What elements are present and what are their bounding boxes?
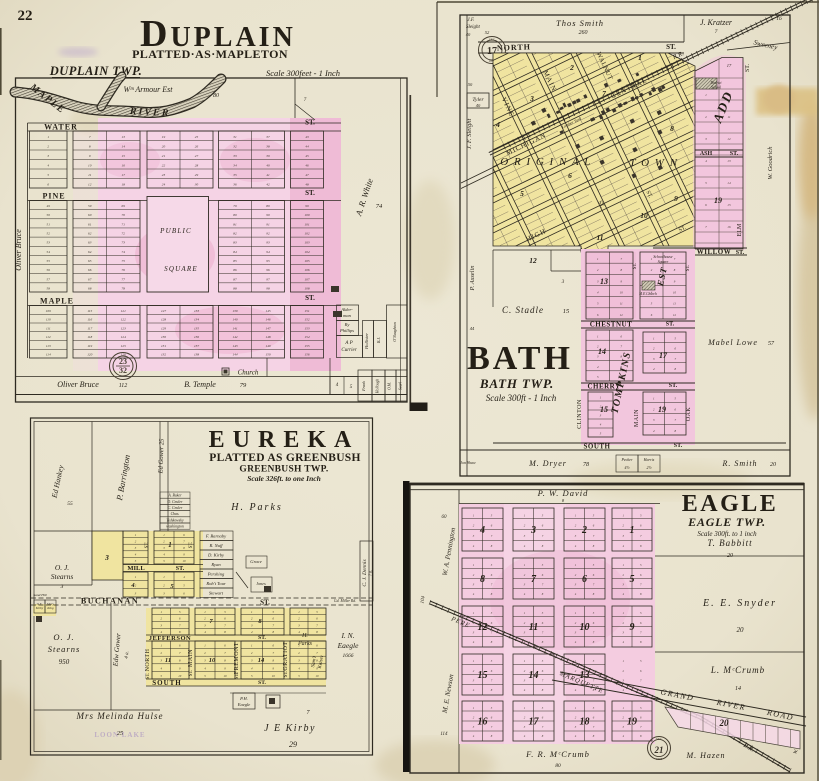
- svg-text:75: 75: [122, 259, 126, 263]
- svg-text:1898: 1898: [656, 757, 663, 761]
- svg-text:15: 15: [727, 203, 731, 207]
- svg-text:20: 20: [162, 144, 166, 148]
- svg-text:142: 142: [232, 335, 237, 339]
- svg-text:C. Gruler: C. Gruler: [168, 506, 183, 510]
- svg-text:21: 21: [654, 745, 664, 755]
- svg-text:10: 10: [272, 674, 276, 678]
- svg-text:ST.: ST.: [235, 673, 240, 680]
- svg-text:74: 74: [376, 203, 383, 210]
- svg-text:Jones: Jones: [256, 581, 266, 586]
- svg-text:A P: A P: [344, 341, 352, 346]
- svg-text:C. Stadle: C. Stadle: [502, 305, 544, 315]
- svg-text:141: 141: [232, 326, 237, 330]
- svg-text:17: 17: [659, 351, 668, 360]
- svg-text:D. Kirby: D. Kirby: [207, 553, 225, 558]
- svg-text:136: 136: [194, 335, 199, 339]
- svg-text:150: 150: [265, 353, 270, 357]
- svg-text:92: 92: [266, 232, 270, 236]
- svg-text:W. Goodrich: W. Goodrich: [767, 147, 774, 180]
- svg-text:154: 154: [304, 335, 309, 339]
- svg-text:112: 112: [119, 383, 128, 389]
- svg-text:ST.: ST.: [284, 671, 289, 678]
- svg-text:Scale 300ft - 1 Inch: Scale 300ft - 1 Inch: [486, 393, 557, 403]
- svg-text:PLATTED·AS·MAPLETON: PLATTED·AS·MAPLETON: [132, 47, 288, 61]
- svg-text:8: 8: [480, 574, 485, 585]
- svg-text:Parks: Parks: [297, 641, 313, 647]
- svg-text:93: 93: [266, 241, 270, 245]
- svg-text:139: 139: [232, 309, 237, 313]
- svg-text:88: 88: [233, 286, 237, 290]
- svg-text:MAPLE: MAPLE: [40, 297, 74, 306]
- svg-text:Mabel Lowe: Mabel Lowe: [707, 338, 758, 347]
- svg-text:114: 114: [46, 353, 51, 357]
- svg-text:21: 21: [162, 154, 166, 158]
- svg-text:6: 6: [582, 574, 587, 585]
- svg-text:53: 53: [47, 241, 51, 245]
- svg-text:130: 130: [161, 335, 166, 339]
- svg-text:124: 124: [121, 335, 126, 339]
- svg-text:86: 86: [233, 268, 237, 272]
- svg-text:14: 14: [258, 657, 265, 664]
- svg-text:10: 10: [183, 559, 187, 563]
- svg-text:Eaegle: Eaegle: [337, 641, 359, 650]
- svg-text:38: 38: [266, 144, 270, 148]
- svg-text:L. MᶜCrumb: L. MᶜCrumb: [710, 665, 765, 675]
- svg-text:15: 15: [600, 405, 608, 414]
- svg-text:3: 3: [705, 137, 707, 141]
- svg-text:CHESTNUT: CHESTNUT: [590, 321, 633, 329]
- svg-text:117: 117: [87, 326, 92, 330]
- svg-text:114: 114: [440, 732, 448, 737]
- svg-text:ST.: ST.: [176, 566, 185, 572]
- svg-text:16: 16: [122, 163, 126, 167]
- svg-text:22: 22: [18, 8, 33, 24]
- svg-text:66: 66: [88, 268, 92, 272]
- svg-text:11: 11: [88, 173, 91, 177]
- svg-text:Alder-: Alder-: [340, 307, 353, 312]
- svg-text:ST.: ST.: [305, 119, 315, 127]
- svg-text:O. Gruler: O. Gruler: [168, 500, 183, 504]
- svg-text:72: 72: [122, 232, 126, 236]
- svg-text:Jon Shaw: Jon Shaw: [460, 460, 476, 465]
- svg-text:17: 17: [122, 173, 126, 177]
- svg-text:10: 10: [88, 163, 92, 167]
- svg-text:Chas.: Chas.: [171, 512, 180, 516]
- svg-text:ST.: ST.: [633, 263, 638, 270]
- svg-text:107: 107: [304, 277, 309, 281]
- svg-text:RIVER: RIVER: [129, 106, 171, 119]
- svg-text:23: 23: [119, 357, 127, 366]
- svg-text:20: 20: [770, 462, 776, 468]
- svg-text:138: 138: [194, 353, 199, 357]
- svg-text:Wᵐ Armour Est: Wᵐ Armour Est: [124, 85, 174, 94]
- svg-text:149: 149: [265, 344, 270, 348]
- svg-text:32: 32: [233, 144, 237, 148]
- svg-text:Sleight: Sleight: [466, 25, 480, 30]
- svg-text:SEC: SEC: [489, 38, 496, 42]
- svg-text:Pershing: Pershing: [207, 572, 225, 577]
- svg-text:King: King: [46, 606, 54, 610]
- svg-text:Square: Square: [658, 260, 669, 264]
- svg-text:1: 1: [705, 93, 707, 97]
- svg-text:1: 1: [168, 541, 172, 549]
- svg-text:Stearns: Stearns: [48, 644, 81, 654]
- svg-text:P.H.: P.H.: [239, 696, 248, 701]
- svg-text:ST.: ST.: [669, 383, 678, 389]
- svg-text:102: 102: [304, 232, 309, 236]
- svg-text:Searl: Searl: [399, 382, 403, 390]
- svg-text:78: 78: [122, 286, 126, 290]
- svg-text:PLATTED AS GREENBUSH: PLATTED AS GREENBUSH: [209, 452, 361, 464]
- svg-text:O R I G I N A L: O R I G I N A L: [500, 156, 591, 168]
- svg-text:104: 104: [304, 250, 309, 254]
- svg-text:82: 82: [233, 232, 237, 236]
- svg-text:ST.: ST.: [145, 542, 150, 549]
- svg-text:Mrs Melinda Hulse: Mrs Melinda Hulse: [76, 711, 164, 721]
- svg-text:R. Nuff: R. Nuff: [208, 543, 223, 548]
- svg-text:3: 3: [529, 94, 534, 103]
- svg-text:FREMONT: FREMONT: [234, 642, 240, 674]
- svg-text:50: 50: [47, 213, 51, 217]
- svg-text:19: 19: [658, 405, 666, 414]
- svg-text:34: 34: [233, 163, 237, 167]
- svg-text:JEFFERSON: JEFFERSON: [149, 635, 191, 642]
- svg-text:67: 67: [88, 277, 92, 281]
- svg-text:79: 79: [240, 382, 247, 389]
- svg-text:ST.: ST.: [730, 151, 739, 157]
- svg-text:260: 260: [579, 30, 588, 36]
- svg-text:F. Barnaby: F. Barnaby: [205, 534, 227, 539]
- svg-text:H.: H.: [301, 633, 308, 639]
- svg-text:46: 46: [305, 163, 309, 167]
- svg-text:ST.: ST.: [146, 673, 151, 680]
- svg-text:60: 60: [88, 213, 92, 217]
- svg-text:43: 43: [305, 135, 309, 139]
- svg-text:80: 80: [213, 93, 219, 99]
- svg-text:132: 132: [161, 353, 166, 357]
- svg-text:15: 15: [478, 670, 488, 681]
- svg-text:44: 44: [470, 326, 475, 331]
- svg-text:19: 19: [162, 135, 166, 139]
- svg-text:151: 151: [304, 309, 309, 313]
- svg-text:J E Kirby: J E Kirby: [264, 723, 316, 734]
- svg-text:5: 5: [705, 181, 707, 185]
- svg-text:EUREKA: EUREKA: [209, 427, 360, 453]
- svg-text:4 a.: 4 a.: [125, 651, 131, 659]
- svg-text:74: 74: [122, 250, 126, 254]
- svg-text:103: 103: [304, 241, 309, 245]
- svg-text:8: 8: [670, 124, 674, 133]
- svg-text:5: 5: [630, 574, 635, 585]
- svg-text:10: 10: [224, 674, 228, 678]
- svg-text:11: 11: [529, 622, 538, 633]
- svg-text:49: 49: [47, 204, 51, 208]
- svg-text:35: 35: [233, 173, 237, 177]
- svg-text:SOUTH: SOUTH: [152, 679, 182, 687]
- svg-text:77: 77: [122, 277, 126, 281]
- svg-text:EAGLE TWP.: EAGLE TWP.: [687, 515, 766, 529]
- svg-text:1666: 1666: [343, 653, 354, 659]
- svg-text:Scale 300ft. to 1 inch: Scale 300ft. to 1 inch: [697, 530, 757, 538]
- svg-text:119: 119: [87, 344, 92, 348]
- svg-text:26: 26: [195, 144, 199, 148]
- svg-text:Ry: Ry: [344, 322, 350, 327]
- svg-text:48: 48: [305, 182, 309, 186]
- svg-text:19: 19: [714, 196, 722, 205]
- svg-text:BATH TWP.: BATH TWP.: [479, 376, 554, 391]
- svg-text:10: 10: [620, 291, 624, 295]
- svg-text:99: 99: [305, 204, 309, 208]
- svg-text:1: 1: [638, 53, 642, 62]
- svg-text:12: 12: [529, 256, 537, 265]
- svg-text:2: 2: [47, 144, 49, 148]
- svg-text:9: 9: [630, 622, 635, 633]
- svg-text:13: 13: [727, 159, 731, 163]
- svg-text:12: 12: [620, 313, 624, 317]
- svg-text:3: 3: [530, 525, 536, 536]
- svg-text:109: 109: [46, 309, 51, 313]
- svg-text:CLINTON: CLINTON: [577, 399, 583, 429]
- svg-text:ST.: ST.: [189, 670, 194, 677]
- svg-text:M. Hazen: M. Hazen: [685, 751, 725, 760]
- svg-text:10: 10: [673, 291, 677, 295]
- svg-text:65: 65: [88, 259, 92, 263]
- svg-text:ST.: ST.: [189, 542, 194, 549]
- svg-text:40: 40: [266, 163, 270, 167]
- svg-text:6: 6: [705, 203, 707, 207]
- svg-text:6: 6: [568, 171, 572, 180]
- svg-text:16: 16: [727, 225, 731, 229]
- svg-text:81: 81: [233, 222, 237, 226]
- svg-text:52: 52: [485, 30, 490, 35]
- svg-text:25: 25: [195, 135, 199, 139]
- svg-text:30: 30: [195, 182, 199, 186]
- svg-text:144: 144: [232, 353, 237, 357]
- svg-text:115: 115: [87, 309, 92, 313]
- svg-text:17: 17: [529, 717, 540, 728]
- svg-text:147: 147: [265, 326, 270, 330]
- svg-text:83: 83: [233, 241, 237, 245]
- svg-text:31: 31: [233, 135, 237, 139]
- svg-text:23: 23: [162, 173, 166, 177]
- svg-text:70: 70: [122, 213, 126, 217]
- svg-text:10: 10: [640, 211, 648, 220]
- svg-text:20: 20: [719, 718, 730, 728]
- svg-text:Gd. Miller Rd.: Gd. Miller Rd.: [334, 599, 356, 603]
- svg-text:111: 111: [46, 326, 51, 330]
- svg-text:Phillips: Phillips: [339, 328, 354, 333]
- svg-text:3: 3: [60, 584, 64, 590]
- svg-text:16: 16: [478, 717, 488, 728]
- svg-text:ST.: ST.: [305, 294, 315, 302]
- svg-text:P. Asselin: P. Asselin: [469, 265, 476, 291]
- svg-text:5: 5: [520, 189, 524, 198]
- svg-text:68: 68: [88, 286, 92, 290]
- svg-text:NORTH: NORTH: [145, 648, 151, 671]
- svg-text:40: 40: [476, 103, 481, 108]
- svg-text:14: 14: [727, 181, 731, 185]
- svg-text:M. Dryer: M. Dryer: [528, 459, 567, 468]
- svg-text:116: 116: [87, 318, 92, 322]
- svg-text:Scale 326ft. to one Inch: Scale 326ft. to one Inch: [247, 474, 321, 483]
- svg-text:15: 15: [122, 154, 126, 158]
- svg-text:10: 10: [209, 657, 216, 664]
- svg-text:73: 73: [122, 241, 126, 245]
- svg-text:J.F.: J.F.: [467, 18, 474, 23]
- svg-text:12: 12: [88, 182, 92, 186]
- svg-text:Church: Church: [238, 369, 259, 377]
- svg-text:32: 32: [119, 366, 127, 375]
- svg-text:ST.: ST.: [686, 265, 691, 272]
- svg-text:121: 121: [121, 309, 126, 313]
- svg-text:97: 97: [266, 277, 270, 281]
- svg-text:Frank: Frank: [361, 381, 366, 392]
- svg-text:152: 152: [304, 318, 309, 322]
- svg-text:153: 153: [304, 326, 309, 330]
- svg-text:B.J.: B.J.: [376, 337, 381, 343]
- svg-text:MAIN: MAIN: [188, 649, 194, 667]
- svg-text:112: 112: [46, 335, 51, 339]
- svg-text:O.M.: O.M.: [388, 382, 392, 390]
- svg-text:84: 84: [233, 250, 237, 254]
- svg-text:15: 15: [563, 308, 570, 315]
- svg-text:135: 135: [194, 326, 199, 330]
- svg-text:I. N.: I. N.: [340, 631, 354, 640]
- svg-text:12: 12: [673, 313, 677, 317]
- svg-text:7: 7: [715, 29, 718, 35]
- svg-text:29: 29: [195, 173, 199, 177]
- svg-text:146: 146: [265, 318, 270, 322]
- svg-text:63: 63: [88, 241, 92, 245]
- svg-text:LOON LAKE: LOON LAKE: [94, 731, 145, 739]
- svg-text:SOUTH: SOUTH: [583, 443, 610, 451]
- svg-text:Hollough: Hollough: [376, 379, 380, 394]
- svg-text:125: 125: [121, 344, 126, 348]
- svg-text:2: 2: [705, 115, 707, 119]
- svg-text:2: 2: [569, 63, 574, 72]
- svg-text:Oliver Bruce: Oliver Bruce: [14, 229, 23, 271]
- svg-text:O. J.: O. J.: [55, 563, 69, 572]
- svg-text:145: 145: [265, 309, 270, 313]
- svg-text:DUPLAIN TWP.: DUPLAIN TWP.: [49, 64, 143, 78]
- svg-text:28: 28: [195, 163, 199, 167]
- svg-text:EAGLE: EAGLE: [682, 491, 779, 517]
- svg-text:122: 122: [121, 318, 126, 322]
- svg-text:110: 110: [46, 318, 51, 322]
- svg-text:WILLOW: WILLOW: [697, 248, 732, 256]
- svg-text:11: 11: [165, 657, 171, 664]
- svg-text:143: 143: [232, 344, 237, 348]
- svg-text:27: 27: [195, 154, 199, 158]
- svg-text:3: 3: [47, 154, 49, 158]
- svg-text:ST.: ST.: [674, 443, 683, 449]
- svg-text:13: 13: [600, 277, 608, 286]
- svg-text:Kirby: Kirby: [35, 606, 44, 610]
- svg-text:137: 137: [194, 344, 199, 348]
- svg-text:94: 94: [266, 250, 270, 254]
- svg-text:55: 55: [67, 501, 73, 507]
- svg-text:5: 5: [47, 173, 49, 177]
- svg-text:Ryan: Ryan: [210, 562, 221, 567]
- svg-text:52: 52: [47, 232, 51, 236]
- svg-text:Tishkowsky: Tishkowsky: [166, 518, 184, 522]
- svg-text:washington: washington: [166, 525, 184, 529]
- svg-text:14: 14: [122, 144, 126, 148]
- svg-text:R. Smith: R. Smith: [721, 459, 757, 468]
- svg-text:10: 10: [178, 674, 182, 678]
- svg-text:123: 123: [121, 326, 126, 330]
- svg-text:Grace: Grace: [250, 559, 261, 564]
- svg-text:ST.: ST.: [666, 322, 675, 328]
- svg-text:120: 120: [87, 353, 92, 357]
- svg-text:13: 13: [122, 135, 126, 139]
- svg-text:95: 95: [266, 259, 270, 263]
- svg-text:B. Temple: B. Temple: [184, 380, 216, 389]
- svg-text:4½: 4½: [625, 465, 630, 470]
- svg-text:12: 12: [727, 137, 731, 141]
- svg-text:P. W. David: P. W. David: [537, 488, 589, 498]
- svg-text:Stearns: Stearns: [51, 572, 74, 581]
- svg-text:105: 105: [304, 259, 309, 263]
- svg-text:T. Babbitt: T. Babbitt: [707, 538, 752, 548]
- svg-text:39: 39: [266, 154, 270, 158]
- svg-text:GREENBUSH TWP.: GREENBUSH TWP.: [239, 465, 328, 475]
- svg-text:50: 50: [468, 82, 473, 87]
- svg-text:20: 20: [737, 626, 745, 634]
- svg-text:29: 29: [289, 740, 297, 749]
- svg-text:101: 101: [304, 222, 309, 226]
- svg-text:56: 56: [47, 268, 51, 272]
- svg-text:44: 44: [305, 144, 309, 148]
- svg-text:J. F. Sleight: J. F. Sleight: [466, 119, 473, 150]
- svg-text:40: 40: [466, 32, 471, 37]
- svg-text:14: 14: [735, 685, 741, 692]
- svg-text:District: District: [710, 81, 723, 85]
- svg-text:PINE: PINE: [42, 192, 65, 201]
- svg-text:10: 10: [580, 622, 590, 633]
- svg-text:156: 156: [304, 353, 309, 357]
- svg-text:ST.: ST.: [745, 63, 751, 72]
- svg-text:4: 4: [705, 159, 707, 163]
- svg-text:80: 80: [555, 763, 561, 769]
- svg-text:78: 78: [583, 462, 589, 468]
- svg-text:PUBLIC: PUBLIC: [159, 227, 192, 235]
- svg-text:57: 57: [768, 341, 775, 347]
- svg-text:Sand Hill: Sand Hill: [33, 593, 46, 597]
- svg-text:ST.: ST.: [258, 680, 266, 686]
- svg-text:118: 118: [87, 335, 92, 339]
- svg-text:2½: 2½: [647, 465, 652, 470]
- svg-text:87: 87: [233, 277, 237, 281]
- svg-text:79: 79: [233, 204, 237, 208]
- svg-text:108: 108: [304, 286, 309, 290]
- svg-text:69: 69: [122, 204, 126, 208]
- svg-text:127: 127: [161, 309, 166, 313]
- svg-text:SQUARE: SQUARE: [164, 265, 198, 273]
- svg-text:ST.: ST.: [305, 189, 315, 197]
- svg-text:Thos Smith: Thos Smith: [556, 18, 604, 28]
- svg-text:Oliver Bruce: Oliver Bruce: [57, 380, 99, 389]
- svg-text:7: 7: [89, 135, 91, 139]
- svg-text:O'Naughton: O'Naughton: [392, 322, 397, 342]
- svg-text:Schoolhouse: Schoolhouse: [653, 255, 673, 259]
- svg-text:MAIN: MAIN: [634, 409, 640, 427]
- svg-text:36: 36: [233, 182, 237, 186]
- svg-text:62: 62: [88, 232, 92, 236]
- svg-text:91: 91: [266, 222, 270, 226]
- svg-text:O. J.: O. J.: [53, 632, 74, 642]
- svg-text:4: 4: [495, 120, 500, 129]
